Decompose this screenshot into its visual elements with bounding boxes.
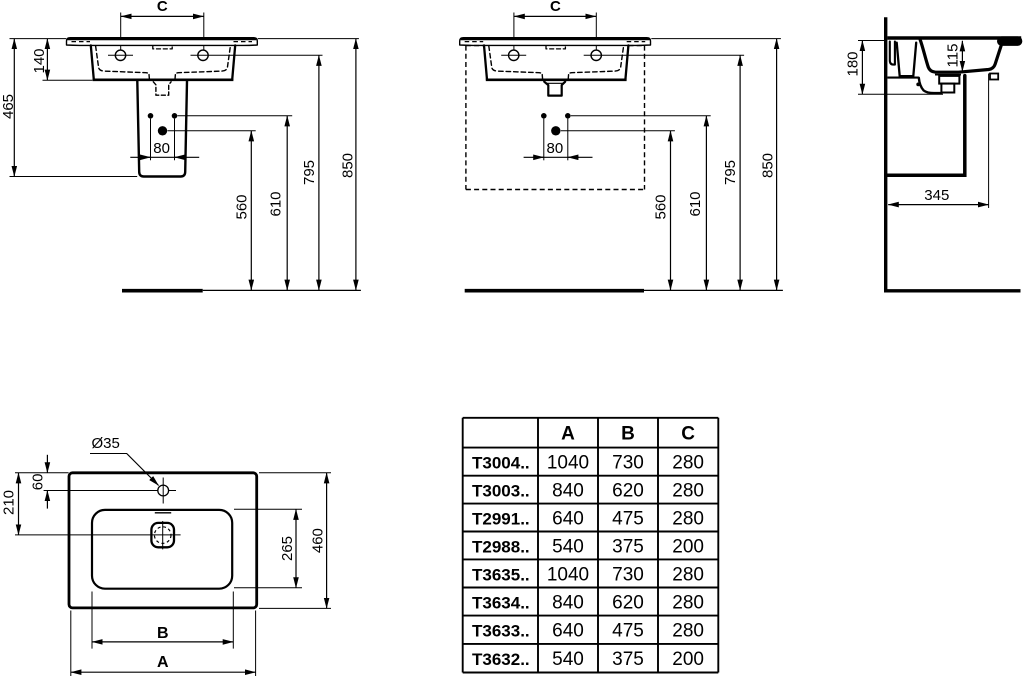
svg-text:620: 620 <box>612 592 644 613</box>
svg-text:115: 115 <box>944 44 961 68</box>
svg-text:640: 640 <box>552 621 584 642</box>
svg-text:620: 620 <box>612 480 644 501</box>
svg-text:C: C <box>550 0 561 15</box>
svg-text:640: 640 <box>552 508 584 529</box>
svg-text:Ø35: Ø35 <box>92 435 120 452</box>
svg-text:A: A <box>157 654 169 671</box>
svg-text:80: 80 <box>547 140 564 157</box>
svg-text:375: 375 <box>612 536 644 557</box>
svg-text:C: C <box>157 0 168 15</box>
svg-text:850: 850 <box>340 153 357 178</box>
svg-text:850: 850 <box>759 153 776 178</box>
svg-text:730: 730 <box>612 564 644 585</box>
svg-text:540: 540 <box>552 649 584 670</box>
svg-text:540: 540 <box>552 536 584 557</box>
svg-text:610: 610 <box>268 191 285 216</box>
svg-text:475: 475 <box>612 621 644 642</box>
svg-text:265: 265 <box>279 536 296 561</box>
svg-text:B: B <box>157 625 169 642</box>
svg-text:280: 280 <box>672 592 704 613</box>
svg-text:T3632..: T3632.. <box>472 650 530 669</box>
svg-text:795: 795 <box>722 160 739 185</box>
svg-text:60: 60 <box>30 474 47 491</box>
svg-text:T3633..: T3633.. <box>472 622 530 641</box>
svg-text:840: 840 <box>552 480 584 501</box>
svg-text:280: 280 <box>672 480 704 501</box>
svg-text:560: 560 <box>234 194 251 219</box>
svg-text:T3004..: T3004.. <box>472 453 530 472</box>
svg-text:T3634..: T3634.. <box>472 593 530 612</box>
svg-text:730: 730 <box>612 452 644 473</box>
svg-text:840: 840 <box>552 592 584 613</box>
svg-text:1040: 1040 <box>547 564 589 585</box>
svg-text:280: 280 <box>672 621 704 642</box>
svg-text:180: 180 <box>845 51 862 76</box>
svg-text:795: 795 <box>301 160 318 185</box>
svg-text:375: 375 <box>612 649 644 670</box>
svg-text:345: 345 <box>924 187 949 204</box>
svg-text:200: 200 <box>672 536 704 557</box>
svg-text:560: 560 <box>653 194 670 219</box>
svg-text:210: 210 <box>1 490 18 515</box>
svg-text:280: 280 <box>672 452 704 473</box>
svg-text:80: 80 <box>153 140 170 157</box>
svg-text:T2991..: T2991.. <box>472 509 530 528</box>
svg-text:610: 610 <box>687 191 704 216</box>
svg-text:140: 140 <box>31 48 48 73</box>
svg-text:B: B <box>621 424 635 445</box>
svg-text:T2988..: T2988.. <box>472 537 530 556</box>
svg-text:200: 200 <box>672 649 704 670</box>
svg-text:280: 280 <box>672 564 704 585</box>
svg-text:460: 460 <box>310 528 327 553</box>
svg-text:T3635..: T3635.. <box>472 565 530 584</box>
svg-text:A: A <box>561 424 575 445</box>
svg-text:T3003..: T3003.. <box>472 481 530 500</box>
svg-text:C: C <box>681 424 695 445</box>
svg-text:465: 465 <box>0 94 17 119</box>
svg-text:475: 475 <box>612 508 644 529</box>
svg-text:1040: 1040 <box>547 452 589 473</box>
svg-text:280: 280 <box>672 508 704 529</box>
